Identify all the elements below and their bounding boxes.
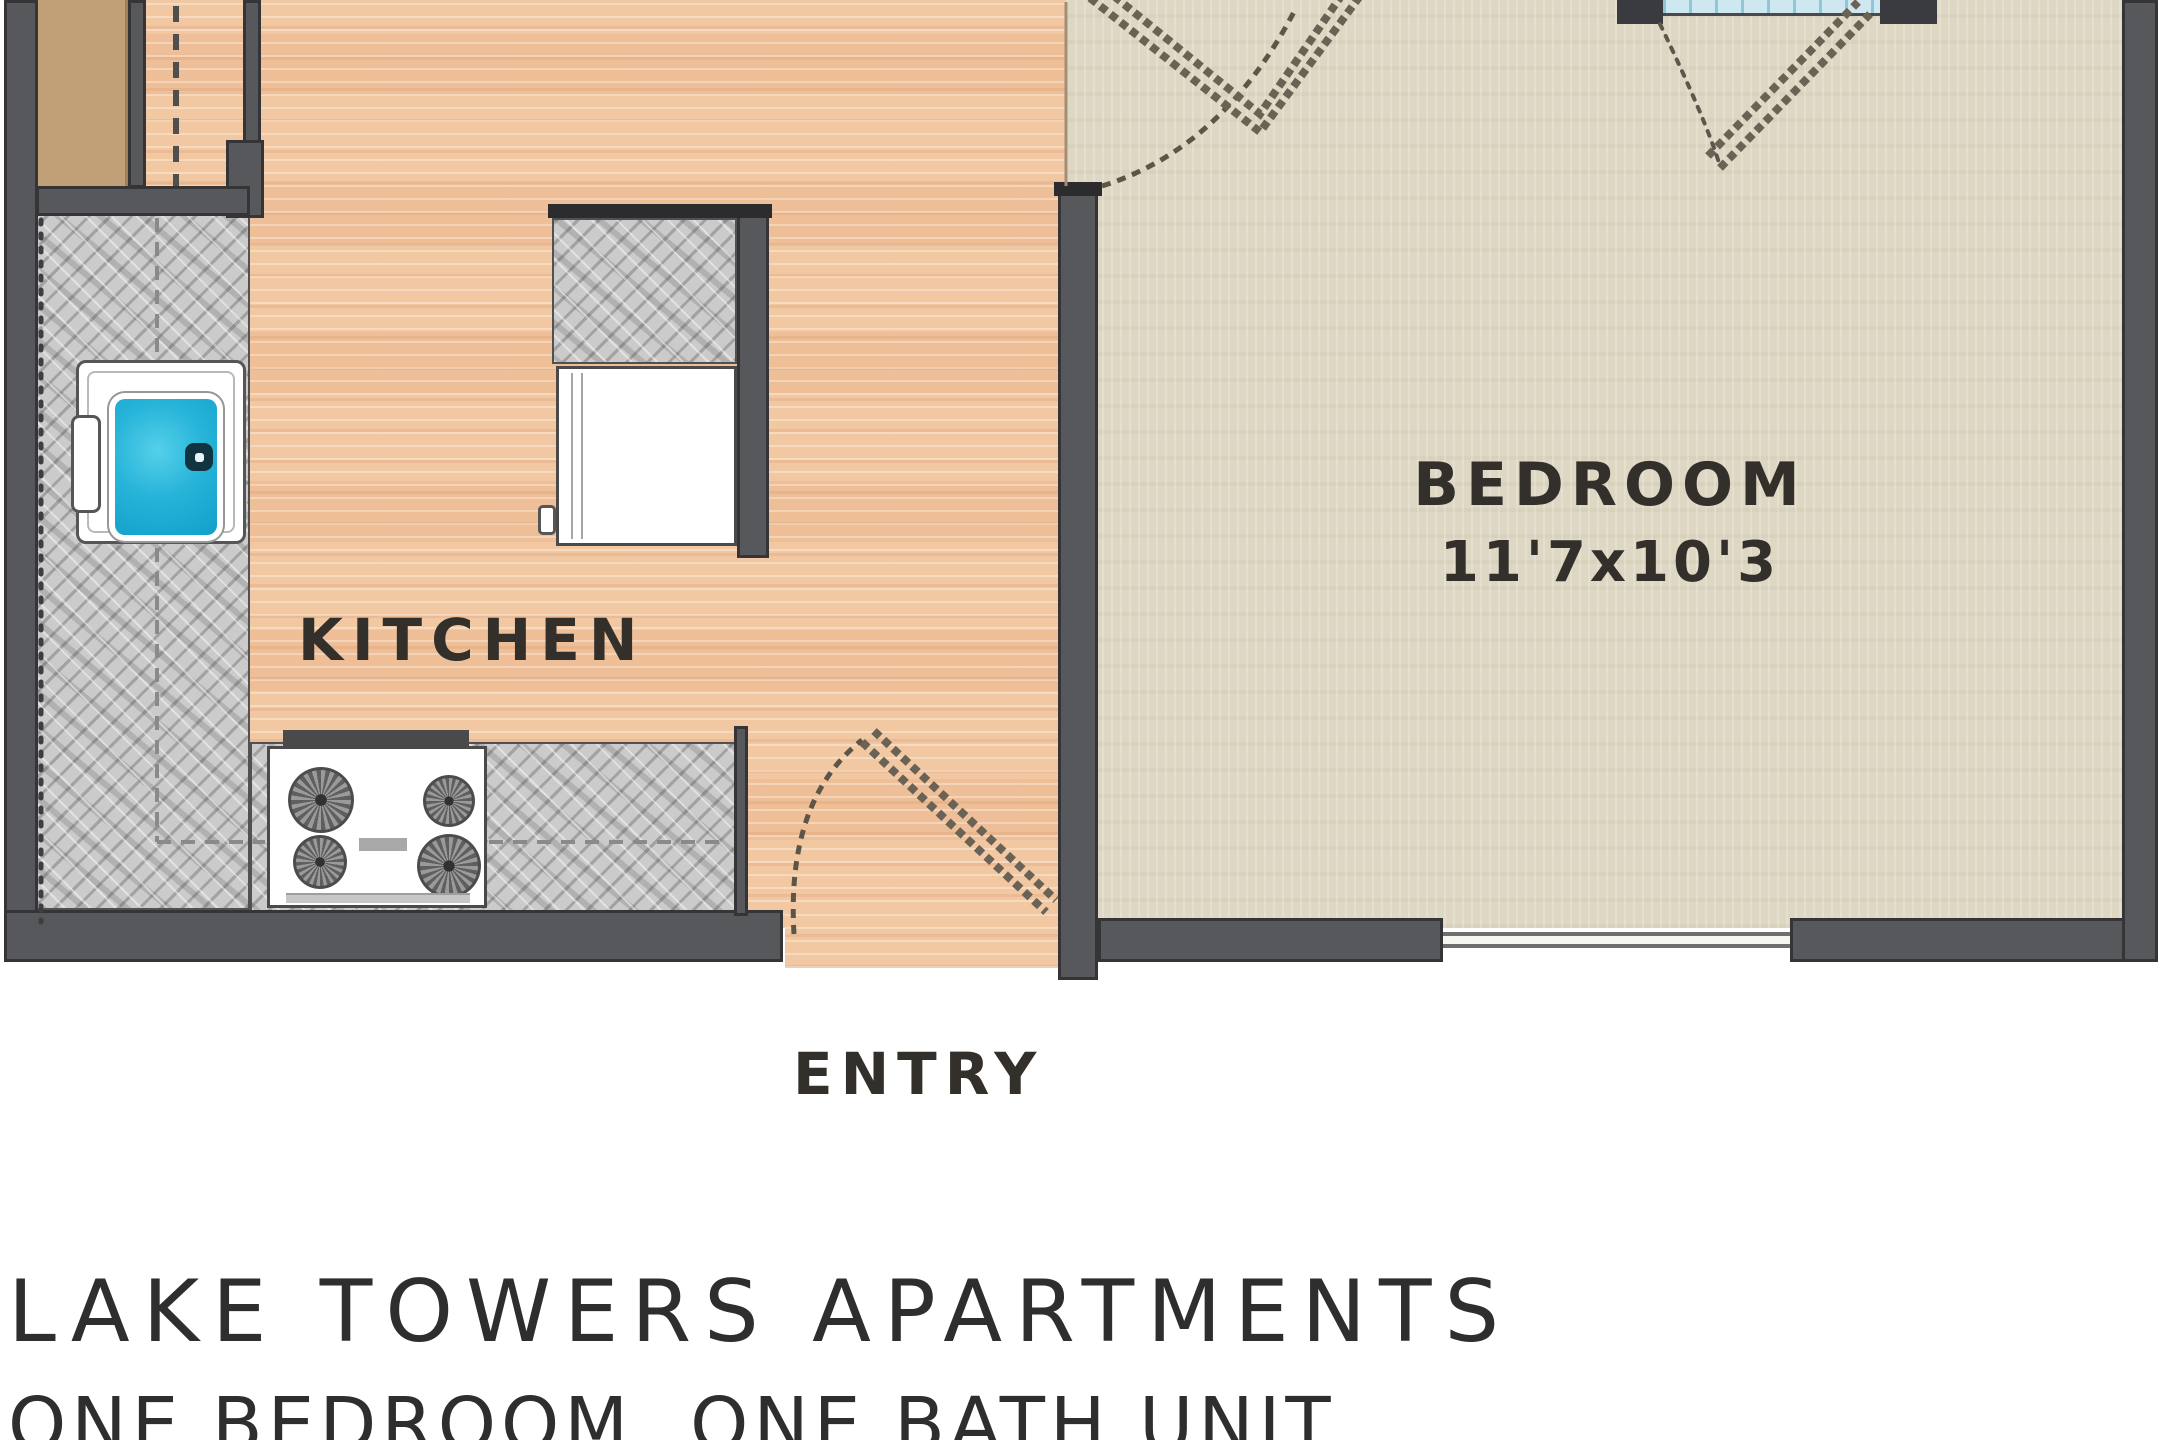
island-counter-cap [548, 204, 772, 218]
wall-right [2122, 0, 2158, 962]
burner-top-left [288, 767, 354, 833]
wall-left [4, 0, 38, 962]
burner-top-right [423, 775, 475, 827]
fridge-door-line-1 [571, 373, 573, 539]
kitchen-sink [76, 360, 246, 544]
plan-subtitle: ONE BEDROOM, ONE BATH UNIT [8, 1382, 1336, 1440]
burner-bottom-left [293, 835, 347, 889]
refrigerator [556, 366, 737, 546]
sink-faucet [71, 415, 101, 513]
bedroom-window-sill [1443, 932, 1790, 948]
bedroom-dimensions: 11'7x10'3 [1330, 530, 1890, 595]
plan-title: LAKE TOWERS APARTMENTS [8, 1262, 1512, 1362]
fridge-handle [538, 505, 556, 535]
window-jamb-right [1880, 0, 1937, 24]
window-jamb-left [1617, 0, 1663, 24]
closet-wall-thin [243, 0, 261, 148]
floor-plan: KITCHEN BEDROOM 11'7x10'3 ENTRY LAKE TOW… [0, 0, 2160, 1440]
counter-left [36, 214, 250, 910]
stove-front-band [286, 893, 470, 903]
closet-wall-mid [128, 0, 146, 188]
wall-kitchen-bottom [4, 910, 783, 962]
wall-divider [1058, 184, 1098, 980]
sink-basin [115, 399, 217, 535]
burner-bottom-right [417, 834, 481, 898]
sink-drain [185, 443, 213, 471]
island-counter [552, 218, 737, 364]
stove-back-cap [283, 730, 469, 746]
stove-center-dash [359, 838, 407, 851]
closet-cabinet [38, 0, 128, 186]
entry-label: ENTRY [793, 1040, 1044, 1108]
island-wall [737, 212, 769, 558]
kitchen-label: KITCHEN [298, 606, 646, 674]
wall-bedroom-bottom-left [1098, 918, 1443, 962]
sink-drain-hole [195, 453, 204, 462]
range-stove [267, 746, 487, 908]
bedroom-label: BEDROOM [1330, 450, 1890, 520]
wall-closet-bottom [36, 186, 250, 216]
entry-threshold [785, 910, 1058, 968]
window-glass [1663, 0, 1880, 16]
wall-bedroom-bottom-right [1790, 918, 2158, 962]
bedroom-label-block: BEDROOM 11'7x10'3 [1330, 450, 1890, 595]
fridge-door-line-2 [581, 373, 583, 539]
wall-divider-cap [1054, 182, 1102, 196]
counter-end-line [734, 726, 748, 916]
